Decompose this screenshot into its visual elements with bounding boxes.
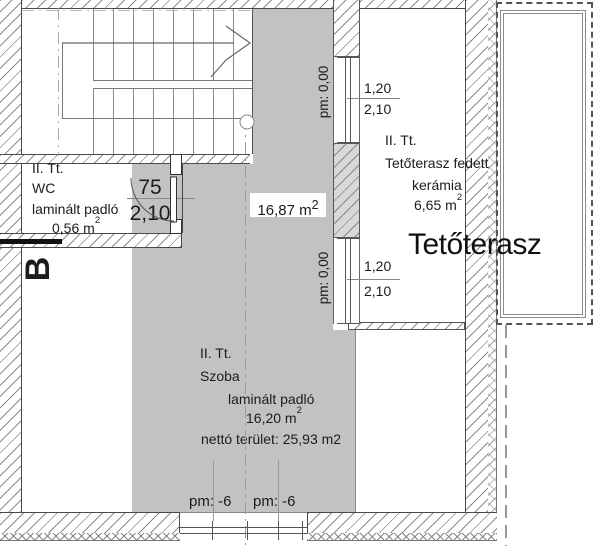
wc-area-label: 0,56 m2 — [52, 220, 100, 236]
pm-zero-bottom-label: pm: 0,00 — [316, 238, 332, 318]
wc-floor-label: laminált padló — [32, 201, 118, 217]
stair-flight-middle — [93, 88, 253, 118]
terrace-title: Tetőterasz — [408, 228, 541, 263]
room-name-label: Szoba — [200, 368, 240, 384]
wall-top — [22, 0, 465, 9]
window-top-opening — [333, 57, 360, 143]
window-bottom-width-label: 1,20 — [364, 258, 391, 274]
wall-right — [465, 0, 488, 533]
terrace-railing-inner — [503, 13, 583, 315]
floor-room-szoba — [132, 330, 355, 512]
window-top-dim-line — [347, 98, 400, 99]
wc-name-label: WC — [32, 180, 55, 196]
stair-flight-upper — [93, 9, 253, 80]
hall-area-chip: 16,87 m2 — [250, 193, 326, 217]
window-bottom-height-label: 2,10 — [364, 283, 391, 299]
door-jamb-top — [170, 154, 182, 175]
covered-terrace-name-label: Tetőterasz fedett — [385, 155, 489, 171]
pm-minus-left-label: pm: -6 — [189, 493, 232, 510]
wall-bottom-left-insulation — [0, 533, 180, 541]
section-letter: B — [19, 249, 57, 289]
room-area-label: 16,20 m2 — [246, 410, 302, 426]
window-bottom-opening — [333, 238, 360, 324]
terrace-railing — [500, 10, 586, 318]
door-dim-line — [127, 198, 195, 199]
window-south-opening — [180, 512, 307, 541]
window-top-width-label: 1,20 — [364, 80, 391, 96]
covered-terrace-area-label: 6,65 m2 — [414, 197, 462, 213]
wall-bottom-left — [0, 512, 180, 533]
floor-plan-drawing: B II. Tt. WC laminált padló 0,56 m2 75 2… — [0, 0, 600, 546]
room-level-label: II. Tt. — [200, 345, 232, 361]
covered-terrace-floor-label: kerámia — [412, 177, 462, 193]
window-top-height-label: 2,10 — [364, 101, 391, 117]
section-cut-line — [0, 239, 62, 244]
door-width-label: 75 — [115, 176, 185, 200]
stair-flight-lower — [93, 118, 253, 154]
stair-landing-line-1 — [93, 80, 253, 81]
pm-zero-top-label: pm: 0,00 — [316, 52, 332, 132]
wc-level-label: II. Tt. — [32, 160, 64, 176]
wall-mid-between-windows — [333, 143, 360, 238]
wall-bottom-right-insulation — [307, 533, 497, 541]
wall-parapet-thin — [348, 322, 465, 330]
wall-bottom-right — [307, 512, 497, 533]
room-net-area-label: nettó terület: 25,93 m2 — [201, 431, 341, 447]
stair-well-left-edge — [62, 42, 63, 118]
window-bottom-dim-line — [347, 279, 400, 280]
covered-terrace-level-label: II. Tt. — [385, 132, 417, 148]
hall-area-label: 16,87 m2 — [257, 202, 318, 219]
wall-mid-upper — [333, 0, 360, 57]
door-height-label: 2,10 — [115, 202, 185, 226]
pm-minus-right-label: pm: -6 — [253, 493, 296, 510]
stair-right-edge — [252, 9, 253, 154]
